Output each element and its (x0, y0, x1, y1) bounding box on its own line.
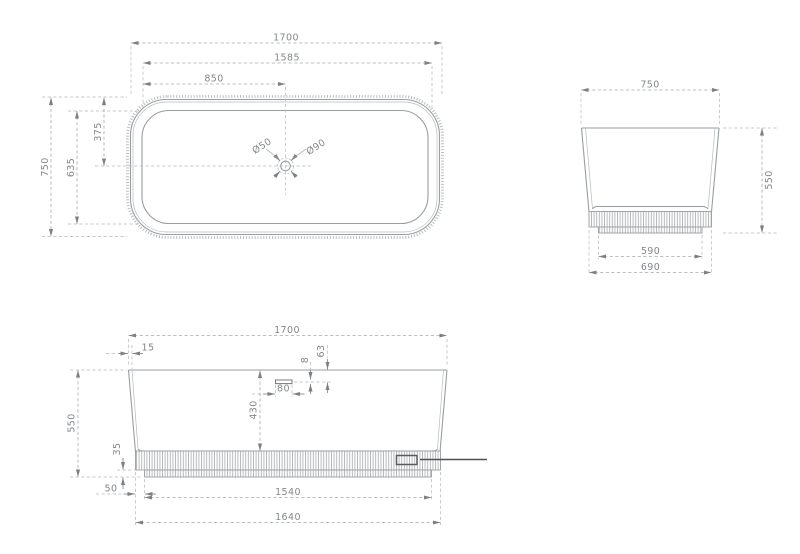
drain-arrow-sw (275, 171, 281, 177)
dim-label-top-half-width: 850 (204, 74, 223, 85)
tub-outer-rim (131, 100, 440, 235)
side-interior-floor (593, 207, 709, 210)
tub-rim-line (133, 102, 437, 232)
dim-label-top-overall-depth: 750 (40, 157, 51, 176)
front-left-wall-inner (132, 370, 138, 449)
side-right-wall-inner (708, 128, 715, 209)
dim-label-side-overall-width: 750 (640, 80, 659, 91)
front-view-dimension-lines (70, 336, 447, 526)
dim-label-drain-large: Ø90 (305, 137, 328, 158)
front-view: 1700 15 63 8 80 430 550 35 50 1540 1640 (67, 325, 488, 525)
front-fluted-base (136, 451, 441, 470)
dim-label-front-base-width: 1640 (275, 512, 301, 523)
front-plinth (145, 470, 432, 477)
side-view: 750 550 590 690 (581, 80, 777, 276)
dim-label-front-base-inset: 50 (105, 484, 118, 495)
dim-label-top-rim-depth: 635 (66, 158, 77, 177)
dim-label-front-plinth-height: 35 (112, 443, 123, 456)
dim-label-front-height: 550 (67, 413, 78, 432)
front-right-wall-inner (438, 370, 444, 449)
side-left-wall-inner (586, 128, 593, 209)
side-left-wall-outer (582, 128, 590, 212)
dim-label-front-overflow-slot-height: 8 (300, 357, 311, 363)
drain-leader-line-small (266, 149, 279, 159)
tub-front-outline (129, 370, 488, 477)
front-right-wall-outer (440, 370, 447, 452)
dim-label-side-plinth-width: 590 (641, 246, 660, 257)
drain-symbol (266, 149, 306, 177)
top-view: 1700 1585 850 750 635 375 Ø50 Ø90 (40, 33, 443, 238)
side-fluted-base (589, 212, 712, 228)
tub-inner-rim (142, 111, 428, 224)
dim-label-side-base-width: 690 (641, 262, 660, 273)
front-left-wall-outer (129, 370, 136, 452)
dim-label-top-half-depth: 375 (93, 122, 104, 141)
tub-fluted-edge (128, 97, 443, 238)
dim-label-front-plinth-width: 1540 (275, 487, 301, 498)
dim-label-drain-small: Ø50 (251, 136, 274, 157)
side-plinth (599, 227, 703, 233)
dim-label-front-overflow-slot-width: 80 (277, 384, 290, 395)
bathtub-technical-drawing: 1700 1585 850 750 635 375 Ø50 Ø90 (0, 0, 800, 554)
drain-arrow-se (291, 171, 297, 177)
dim-label-front-inner-depth: 430 (249, 400, 260, 419)
dim-label-top-rim-width: 1585 (274, 53, 300, 64)
side-right-wall-outer (712, 128, 720, 212)
dim-label-top-overall-width: 1700 (273, 33, 299, 44)
tub-plan-outline (128, 97, 443, 238)
side-view-dimension-lines (581, 90, 777, 275)
dim-label-front-overall-width: 1700 (274, 325, 300, 336)
dim-label-front-overflow-offset: 63 (316, 345, 327, 358)
drawing-svg: 1700 1585 850 750 635 375 Ø50 Ø90 (0, 0, 800, 554)
dim-label-front-rim-thickness: 15 (142, 343, 155, 354)
dim-label-side-height: 550 (764, 170, 775, 189)
tub-side-outline (582, 128, 720, 233)
drain-leader-line-large (292, 149, 306, 159)
